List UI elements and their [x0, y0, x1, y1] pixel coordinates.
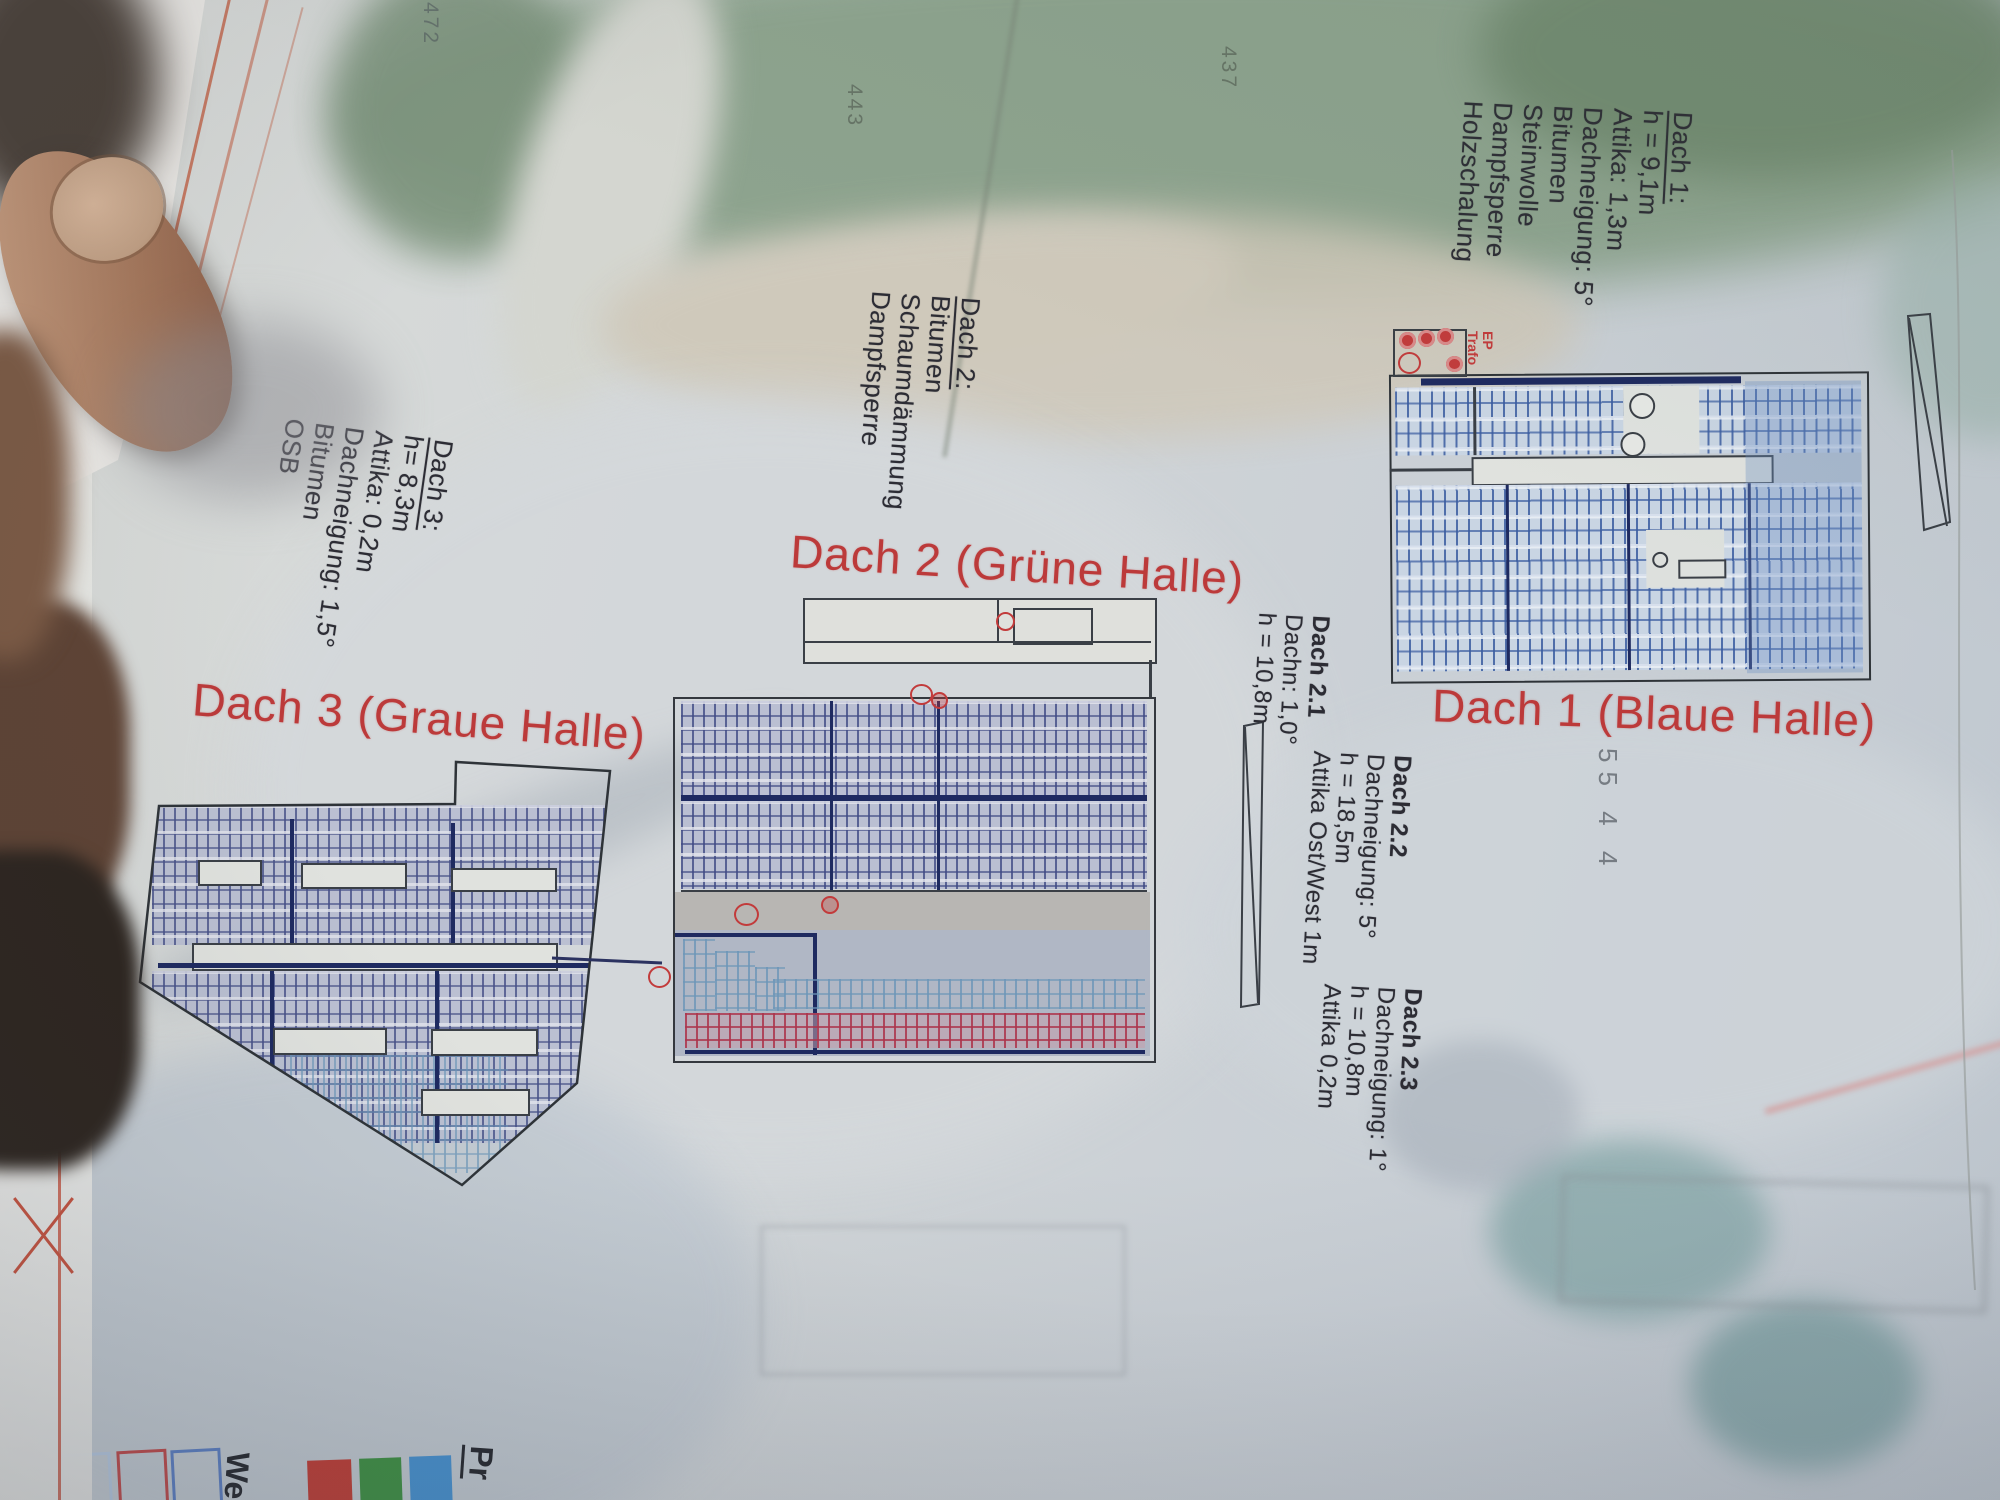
dach2-lower-line: [675, 933, 815, 937]
dach2-title: Dach 2 (Grüne Halle): [789, 524, 1246, 606]
dach2-marker-circle-outside: [648, 966, 671, 988]
dach2-panel-field-a: [681, 701, 1147, 795]
dach2-panel-field-b: [681, 801, 1147, 889]
map-teal-building2: [1690, 1300, 1920, 1470]
dach3-rooflight: [431, 1029, 538, 1056]
map-handwritten-number: 55 4 4: [1592, 748, 1623, 874]
dach3-divider-line: [435, 971, 439, 1143]
dach2-bottom-line: [685, 1050, 1145, 1054]
map-building-outline2: [760, 1225, 1126, 1376]
margin-red-line-bottom: [58, 1150, 61, 1500]
dach3-rooflight: [301, 863, 407, 889]
dach1-vent-circle: [1629, 393, 1655, 419]
dach3-rooflight: [421, 1089, 530, 1116]
dach2-teal-panel-band: [773, 979, 1145, 1009]
dach2-marker-circle: [734, 903, 759, 926]
dach1-walkway: [1472, 455, 1774, 486]
dach3-divider-line: [290, 819, 294, 947]
dach3-rooflight: [198, 860, 262, 886]
dach2-divider-line: [937, 701, 940, 890]
dach3-roof-plan: [140, 755, 620, 1200]
map-green-field: [340, 0, 2000, 300]
dach1-left-line: [1390, 468, 1474, 472]
dach2-marker-badge: [931, 692, 948, 709]
dach1-dimension-bracket: [1908, 314, 1950, 530]
dach1-cutout-box: [1678, 559, 1726, 578]
dach1-strip-divider: [1473, 387, 1476, 455]
dach1-blue-wash: [1745, 380, 1863, 673]
dach1-title: Dach 1 (Blaue Halle): [1431, 678, 1877, 747]
map-pink-road-line: [1765, 1032, 2000, 1115]
dach1-cutout-circle: [1652, 552, 1668, 568]
map-parcel-number: 443: [842, 84, 866, 128]
dach2-top-strip-outline: [803, 598, 1157, 664]
dach2-1-spec-block: Dach 2.1 Dachn: 1,0° h = 10,8m: [1247, 612, 1335, 746]
legend-label-left: We: [216, 1451, 256, 1500]
ep-trafo-dot: [1418, 330, 1435, 347]
dach2-top-strip-box: [1013, 608, 1093, 645]
dach2-spec-block: Dach 2: Bitumen Schaumdämmung Dampfsperr…: [850, 290, 986, 538]
dach1-roof-plan: [1387, 366, 1889, 684]
map-parcel-number: 437: [1216, 46, 1240, 90]
dach2-stepped-panels: [715, 951, 755, 1011]
dach1-spec-block: Dach 1: h = 9,1m Attika: 1,3m Dachneigun…: [1446, 100, 1699, 362]
dach2-marker-circle: [910, 684, 933, 705]
dach2-red-panel-band: [685, 1013, 1145, 1048]
ep-trafo-open-circle: [1398, 352, 1421, 374]
legend-outline-swatch-red: [116, 1449, 169, 1500]
dach3-walkway-line: [158, 963, 610, 968]
legend-filled-swatch-blue: [409, 1455, 453, 1500]
dach2-2-spec-block: Dach 2.2 Dachneigung: 5° h = 18,5m Attik…: [1296, 750, 1416, 990]
dach3-spec-block: Dach 3: h= 8,3m Attika: 0,2m Dachneigung…: [245, 417, 459, 700]
ep-trafo-dot: [1446, 356, 1463, 372]
dach2-marker-badge: [821, 896, 839, 914]
legend-label-right: Pr: [461, 1445, 500, 1481]
map-building-outline: [1558, 1174, 1989, 1313]
dach2-roof-plan: [665, 595, 1265, 1070]
map-parcel-number: 472: [418, 2, 442, 46]
legend-filled-swatch-red: [307, 1459, 353, 1500]
legend-filled-swatch-green: [359, 1457, 403, 1500]
map-road-curve: [453, 0, 766, 437]
dach2-stepped-panels: [683, 939, 715, 1011]
dach2-top-strip-line: [805, 641, 1151, 643]
legend-outline-swatch-blue: [170, 1448, 223, 1500]
dach2-divider-line: [830, 701, 833, 890]
map-road-edge-right: [1952, 150, 1975, 1290]
dach2-marker-circle: [996, 612, 1015, 631]
map-green-left: [330, 0, 590, 260]
map-teal-building3: [1880, 180, 2000, 440]
paper-margin-left: [0, 430, 92, 1500]
dach1-vent-circle: [1620, 432, 1645, 457]
photo-of-roof-plan-document: 472 443 437 55 4 4: [0, 0, 2000, 1500]
dach3-rooflight: [451, 868, 557, 892]
dach3-rooflight: [273, 1028, 387, 1055]
dach2-connector-line: [1149, 660, 1152, 699]
dach2-3-spec-block: Dach 2.3 Dachneigung: 1° h = 10,8m Attik…: [1309, 983, 1426, 1168]
dach1-dimension-diagonal: [1909, 318, 1947, 526]
ep-trafo-dot: [1399, 332, 1416, 349]
